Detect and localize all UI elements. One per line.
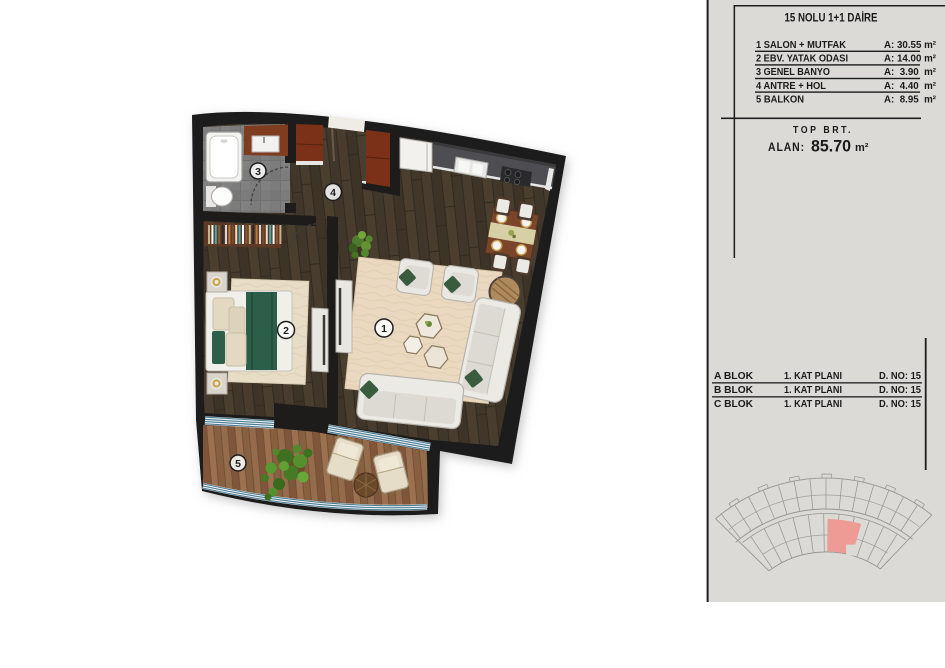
svg-text:A: 30.55 m²: A: 30.55 m²	[884, 39, 936, 51]
svg-text:ALAN:: ALAN:	[768, 142, 805, 154]
svg-text:B BLOK: B BLOK	[714, 384, 753, 396]
svg-text:D. NO: 15: D. NO: 15	[879, 385, 921, 396]
svg-text:D. NO: 15: D. NO: 15	[879, 399, 921, 410]
svg-text:1: 1	[381, 323, 387, 335]
svg-text:m²: m²	[855, 142, 869, 154]
svg-text:A: 3.90 m²: A: 3.90 m²	[884, 66, 936, 78]
svg-text:2: 2	[283, 325, 289, 337]
svg-text:5: 5	[235, 458, 241, 470]
svg-text:A: 8.95 m²: A: 8.95 m²	[884, 93, 936, 105]
svg-text:A: 4.40 m²: A: 4.40 m²	[884, 80, 936, 92]
svg-text:1. KAT PLANI: 1. KAT PLANI	[784, 385, 842, 396]
svg-text:4 ANTRE + HOL: 4 ANTRE + HOL	[756, 80, 827, 92]
svg-text:3 GENEL BANYO: 3 GENEL BANYO	[756, 66, 830, 78]
svg-text:1 SALON + MUTFAK: 1 SALON + MUTFAK	[756, 39, 846, 51]
svg-text:C BLOK: C BLOK	[714, 398, 753, 410]
svg-text:3: 3	[255, 166, 261, 178]
svg-text:5 BALKON: 5 BALKON	[756, 93, 804, 105]
svg-text:2 EBV. YATAK ODASI: 2 EBV. YATAK ODASI	[756, 53, 848, 65]
svg-text:TOP BRT.: TOP BRT.	[793, 124, 853, 136]
svg-text:85.70: 85.70	[811, 138, 851, 156]
svg-text:A: 14.00 m²: A: 14.00 m²	[884, 53, 936, 65]
svg-text:15 NOLU 1+1 DAİRE: 15 NOLU 1+1 DAİRE	[785, 12, 878, 25]
svg-text:A BLOK: A BLOK	[714, 370, 753, 382]
svg-text:1. KAT PLANI: 1. KAT PLANI	[784, 399, 842, 410]
svg-text:4: 4	[330, 187, 336, 199]
svg-text:1. KAT PLANI: 1. KAT PLANI	[784, 371, 842, 382]
svg-text:D. NO: 15: D. NO: 15	[879, 371, 921, 382]
